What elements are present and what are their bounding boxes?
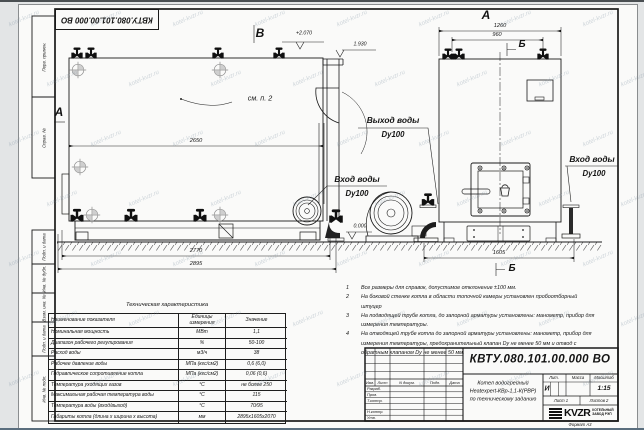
spec-cell: Гидравлическое сопротивление котла (49, 370, 179, 381)
section-a-label: А (55, 106, 64, 118)
spec-cell: 115 (226, 391, 287, 402)
spec-cell: 1,1 (226, 328, 287, 339)
spec-cell: 0,06 (0,6) (226, 370, 287, 381)
dim-1260: 1260 (494, 24, 506, 30)
title-block-designation: КВТУ.080.101.00.000 ВО (470, 354, 611, 366)
spec-cell: Температура уходящих газов (49, 381, 179, 392)
dim-1605: 1605 (493, 251, 505, 257)
spec-cell: МПа (кгс/см2) (179, 370, 226, 381)
margin-label: Взам. инв. № (41, 294, 46, 321)
elevation-chimney: 1.930 (354, 42, 367, 47)
spec-cell: 0,6 (6,0) (226, 360, 287, 371)
spec-table: Наименование показателя Единицы измерени… (48, 313, 286, 424)
title-block-lit-value: И (544, 386, 549, 393)
see-note-label: см. п. 2 (248, 94, 272, 101)
spec-cell: °С (179, 381, 226, 392)
title-block-desc-1: Котел водогрейный (477, 381, 528, 386)
role-prov: Пров. (367, 393, 377, 397)
elevation-top: +2.070 (296, 31, 312, 36)
note-number: 3 (343, 312, 361, 331)
margin-cell-podp-data-1: Подп. и дата (32, 230, 55, 264)
title-block-scale-header: Масштаб (594, 376, 614, 380)
water-inlet-dn: Dy100 (346, 190, 369, 198)
dim-960: 960 (492, 33, 501, 39)
margin-cell-inv-dubl: Инв. № дубл. (32, 264, 55, 293)
spec-cell: Габариты котла (длина х ширина х высота) (49, 412, 179, 423)
kvzr-logo: KVZR КОТЕЛЬНЫЙ ЗАВОД РЭП (549, 406, 615, 420)
corner-stamp: КВТУ.080.101.00.000 ВО (55, 9, 159, 30)
spec-header-name: Наименование показателя (49, 314, 179, 328)
spec-cell: 70/95 (226, 402, 287, 413)
kvzr-logo-sub-2: ЗАВОД РЭП (592, 413, 613, 417)
margin-cell-perv-primen: Перв. примен. (32, 16, 55, 97)
note-number: 1 (343, 284, 361, 293)
note-text: Все размеры для справок, допустимое откл… (361, 284, 595, 293)
margin-label: Инв. № дубл. (41, 265, 46, 292)
margin-label: Подп. и дата (41, 325, 46, 353)
title-block-mass-header: Масса (572, 376, 584, 380)
ground-lines (57, 242, 602, 251)
water-outlet-label: Выход воды (367, 116, 420, 124)
role-razrab: Разраб. (367, 387, 381, 391)
spec-cell: Максимальная рабочая температура воды (49, 391, 179, 402)
spec-cell: не более 250 (226, 381, 287, 392)
margin-label: Инв. № подл. (41, 375, 46, 402)
change-header-doc: N докум. (399, 381, 415, 385)
change-header-izm: Изм. (366, 381, 374, 385)
kvzr-logo-icon (549, 408, 562, 419)
door-bolts (473, 166, 529, 238)
change-header-data: Дата (449, 381, 459, 385)
corner-stamp-text: КВТУ.080.101.00.000 ВО (61, 15, 153, 24)
title-block-scale-value: 1:15 (597, 386, 610, 393)
front-view-lines (439, 52, 580, 242)
view-b-label: В (256, 27, 265, 39)
spec-cell: °С (179, 391, 226, 402)
margin-label: Подп. и дата (41, 233, 46, 261)
note-text: На подводящей трубе котла, до запорной а… (361, 312, 595, 331)
spec-table-title: Техническая характеристика (126, 302, 208, 308)
change-header-podp: Подп. (430, 381, 440, 385)
kvzr-logo-word: KVZR (564, 407, 590, 419)
spec-cell: Номинальная мощность (49, 328, 179, 339)
title-block-desc-2: Heatexpert-КВр-1,1-К(РВР) (470, 389, 537, 394)
margin-label: Перв. примен. (41, 42, 46, 71)
note-item: 2На боковой стенке котла в области топоч… (343, 293, 595, 312)
role-tkontr: Т.контр. (367, 399, 383, 403)
section-b-top-label: Б (518, 40, 525, 50)
elevation-zero: 0.000 (354, 224, 367, 229)
water-inlet2-label: Вход воды (569, 155, 614, 163)
title-block-lit-header: Лит. (549, 376, 559, 380)
spec-cell: мм (179, 412, 226, 423)
role-utv: Утв. (367, 416, 376, 420)
fan-lines (366, 192, 426, 242)
spec-cell: МПа (кгс/см2) (179, 360, 226, 371)
title-block-sheets: Листов 2 (590, 398, 609, 402)
spec-cell: % (179, 339, 226, 350)
spec-cell: Рабочее давление воды (49, 360, 179, 371)
spec-header-units: Единицы измерения (179, 314, 226, 328)
title-block-sheet: Лист 1 (554, 398, 568, 402)
drawing-page: КВТУ.080.101.00.000 ВО Перв. примен. Спр… (0, 0, 644, 430)
format-label: Формат А3 (569, 423, 592, 427)
spec-cell: °С (179, 402, 226, 413)
section-b-bottom-label: Б (508, 264, 515, 274)
dim-2895: 2895 (190, 262, 202, 268)
margin-cell-sprav-no: Справ. № (32, 97, 55, 178)
role-nkontr: Н.контр. (367, 410, 383, 414)
spec-header-value: Значение (226, 314, 287, 328)
change-header-list: Лист (377, 381, 387, 385)
note-number: 2 (343, 293, 361, 312)
spec-cell: 38 (226, 349, 287, 360)
spec-cell: МВт (179, 328, 226, 339)
water-inlet-label: Вход воды (334, 175, 379, 183)
note-item: 3На подводящей трубе котла, до запорной … (343, 312, 595, 331)
note-text: На боковой стенке котла в области топочн… (361, 293, 595, 312)
water-outlet-dn: Dy100 (382, 131, 405, 139)
note-item: 1Все размеры для справок, допустимое отк… (343, 284, 595, 293)
spec-cell: Диапазон рабочего регулирования (49, 339, 179, 350)
water-inlet2-dn: Dy100 (583, 170, 606, 178)
kvzr-logo-subtitle: КОТЕЛЬНЫЙ ЗАВОД РЭП (592, 409, 613, 417)
view-a-label: А (482, 9, 491, 21)
dim-2650: 2650 (190, 139, 202, 145)
spec-cell: м3/ч (179, 349, 226, 360)
notes-block: 1Все размеры для справок, допустимое отк… (343, 284, 595, 358)
margin-label: Справ. № (41, 128, 46, 148)
spec-cell: Температура воды (вход/выход) (49, 402, 179, 413)
title-block-desc-3: по техническому заданию (470, 397, 537, 402)
spec-cell: 2895х1605х2070 (226, 412, 287, 423)
dim-2770: 2770 (190, 249, 202, 255)
spec-cell: 50-100 (226, 339, 287, 350)
spec-cell: Расход воды (49, 349, 179, 360)
note-number: 4 (343, 330, 361, 358)
